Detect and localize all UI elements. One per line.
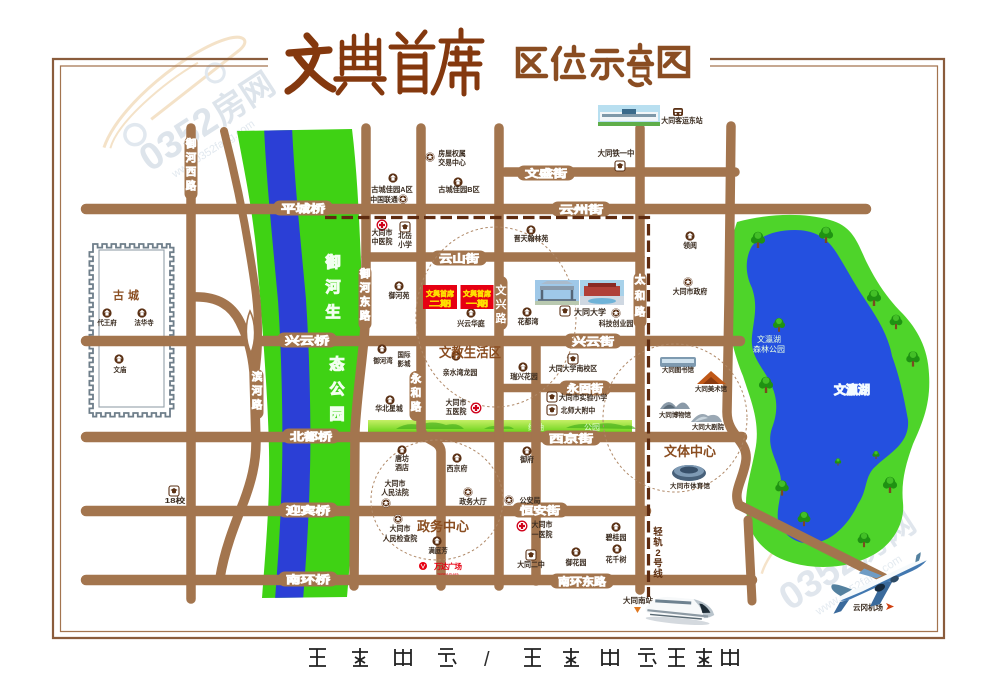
svg-text:大同南站: 大同南站 [623, 595, 654, 605]
svg-text:二期: 二期 [429, 298, 452, 308]
svg-text:南环桥: 南环桥 [286, 573, 331, 586]
svg-text:小学: 小学 [398, 239, 412, 249]
svg-text:态: 态 [329, 355, 344, 373]
svg-text:中医院: 中医院 [372, 236, 393, 246]
svg-text:河: 河 [325, 278, 340, 296]
svg-text:大同图书馆: 大同图书馆 [662, 365, 695, 374]
svg-text:文瀛湖: 文瀛湖 [757, 334, 781, 344]
svg-text:大同市: 大同市 [372, 227, 393, 237]
svg-text:文庙: 文庙 [114, 365, 127, 374]
svg-text:文: 文 [496, 283, 508, 297]
svg-text:河: 河 [360, 282, 371, 294]
svg-text:大同市: 大同市 [390, 523, 411, 533]
svg-text:大同大学: 大同大学 [574, 307, 606, 317]
svg-text:法华寺: 法华寺 [134, 318, 153, 327]
svg-text:代王府: 代王府 [96, 318, 116, 327]
svg-text:御: 御 [324, 253, 340, 271]
svg-text:一期: 一期 [466, 298, 489, 308]
svg-text:河: 河 [186, 152, 197, 164]
svg-text:大同二中: 大同二中 [517, 559, 545, 569]
svg-text:国际: 国际 [398, 350, 411, 359]
svg-text:兴云桥: 兴云桥 [285, 334, 330, 347]
svg-text:大同市实验小学: 大同市实验小学 [559, 392, 608, 402]
svg-text:云山街: 云山街 [439, 252, 480, 265]
svg-text:大同博物馆: 大同博物馆 [659, 410, 692, 419]
svg-text:政务中心: 政务中心 [417, 519, 469, 534]
svg-text:华北星城: 华北星城 [375, 403, 403, 413]
svg-text:大同市: 大同市 [446, 397, 467, 407]
svg-text:北师大附中: 北师大附中 [561, 405, 596, 415]
svg-text:花都湾: 花都湾 [518, 316, 539, 326]
svg-text:路: 路 [496, 311, 508, 325]
svg-text:文與首席: 文與首席 [463, 289, 491, 298]
svg-text:碧桂园: 碧桂园 [605, 532, 627, 542]
svg-text:兴云街: 兴云街 [572, 335, 615, 348]
svg-text:科技创业园: 科技创业园 [599, 318, 634, 328]
svg-text:公: 公 [329, 381, 344, 398]
svg-text:交易中心: 交易中心 [438, 157, 466, 167]
svg-text:路: 路 [360, 309, 371, 322]
svg-text:花千树: 花千树 [606, 554, 627, 564]
svg-text:万达广场: 万达广场 [433, 561, 463, 571]
svg-text:大同美术馆: 大同美术馆 [695, 384, 728, 393]
svg-text:太: 太 [634, 273, 646, 286]
svg-text:御河苑: 御河苑 [388, 290, 410, 300]
svg-text:文瀛湖: 文瀛湖 [834, 382, 870, 397]
svg-text:路: 路 [252, 398, 263, 411]
svg-text:御府: 御府 [519, 454, 534, 464]
svg-text:人民检查院: 人民检查院 [383, 533, 418, 543]
svg-text:人民法院: 人民法院 [381, 487, 409, 497]
svg-text:大同市体育馆: 大同市体育馆 [670, 481, 711, 490]
svg-text:一医院: 一医院 [532, 529, 553, 539]
svg-text:影城: 影城 [398, 359, 411, 368]
svg-text:御河湾: 御河湾 [372, 356, 392, 365]
svg-text:河: 河 [252, 385, 263, 397]
svg-text:恒安街: 恒安街 [520, 504, 561, 517]
svg-text:平城桥: 平城桥 [281, 202, 326, 215]
svg-text:云州街: 云州街 [559, 203, 604, 216]
svg-text:满庭芳: 满庭芳 [428, 546, 447, 555]
svg-text:文盛街: 文盛街 [524, 167, 568, 180]
svg-text:轻: 轻 [653, 526, 663, 538]
svg-text:迎宾桥: 迎宾桥 [286, 504, 331, 517]
svg-text:西: 西 [186, 166, 197, 178]
svg-text:兴云华庭: 兴云华庭 [457, 318, 485, 328]
svg-text:西京府: 西京府 [447, 463, 468, 473]
svg-text:文與首席: 文與首席 [426, 289, 454, 298]
svg-text:东: 东 [360, 295, 371, 308]
svg-text:和: 和 [634, 289, 646, 302]
svg-text:轨: 轨 [653, 537, 663, 549]
svg-text:西京街: 西京街 [549, 432, 594, 445]
svg-text:生: 生 [325, 303, 340, 321]
svg-text:文教生活区: 文教生活区 [439, 345, 501, 360]
svg-text:大同大剧院: 大同大剧院 [692, 422, 725, 431]
svg-text:大同铁一中: 大同铁一中 [598, 148, 635, 158]
svg-text:大同市: 大同市 [532, 519, 553, 529]
svg-text:号: 号 [653, 559, 663, 570]
svg-text:北岳: 北岳 [398, 230, 412, 240]
svg-text:五医院: 五医院 [446, 406, 467, 416]
svg-text:永: 永 [410, 372, 422, 385]
svg-text:政务大厅: 政务大厅 [459, 496, 487, 506]
svg-text:古城佳园A区: 古城佳园A区 [371, 184, 413, 194]
svg-text:瑞兴花园: 瑞兴花园 [510, 371, 538, 381]
svg-text:御花园: 御花园 [565, 557, 587, 567]
svg-text:兴: 兴 [496, 297, 507, 311]
svg-text:园: 园 [329, 406, 344, 423]
svg-text:路: 路 [635, 305, 646, 318]
svg-text:路: 路 [411, 400, 422, 413]
svg-text:房屋权属: 房屋权属 [438, 148, 466, 158]
svg-text:南环东路: 南环东路 [558, 575, 607, 588]
svg-text:领阅: 领阅 [683, 240, 697, 250]
svg-text:线: 线 [653, 568, 663, 580]
svg-text:酒店: 酒店 [395, 462, 409, 472]
svg-text:中国联通: 中国联通 [370, 194, 398, 204]
svg-text:文体中心: 文体中心 [664, 444, 716, 459]
svg-text:北都桥: 北都桥 [290, 430, 333, 443]
svg-text:唐坊: 唐坊 [395, 453, 409, 463]
svg-text:WANDA PLAZA: WANDA PLAZA [437, 572, 458, 576]
svg-text:滨: 滨 [252, 370, 263, 383]
svg-text:大同大学南校区: 大同大学南校区 [549, 363, 598, 373]
svg-text:大同客运东站: 大同客运东站 [661, 115, 703, 125]
svg-text:御: 御 [185, 137, 197, 150]
svg-text:2: 2 [655, 548, 660, 559]
svg-text:亲水湾龙园: 亲水湾龙园 [443, 367, 478, 377]
svg-text:晋天翰林苑: 晋天翰林苑 [514, 233, 549, 243]
svg-text:森林公园: 森林公园 [753, 344, 785, 354]
svg-text:大同市政府: 大同市政府 [673, 286, 708, 296]
svg-text:公安局: 公安局 [520, 495, 541, 505]
svg-text:大同市: 大同市 [385, 478, 406, 488]
svg-text:和: 和 [410, 386, 422, 399]
svg-text:/: / [484, 649, 490, 671]
svg-text:路: 路 [186, 179, 197, 192]
svg-text:18校: 18校 [165, 495, 186, 505]
svg-text:古城佳园B区: 古城佳园B区 [438, 184, 480, 194]
svg-text:御: 御 [359, 267, 371, 280]
